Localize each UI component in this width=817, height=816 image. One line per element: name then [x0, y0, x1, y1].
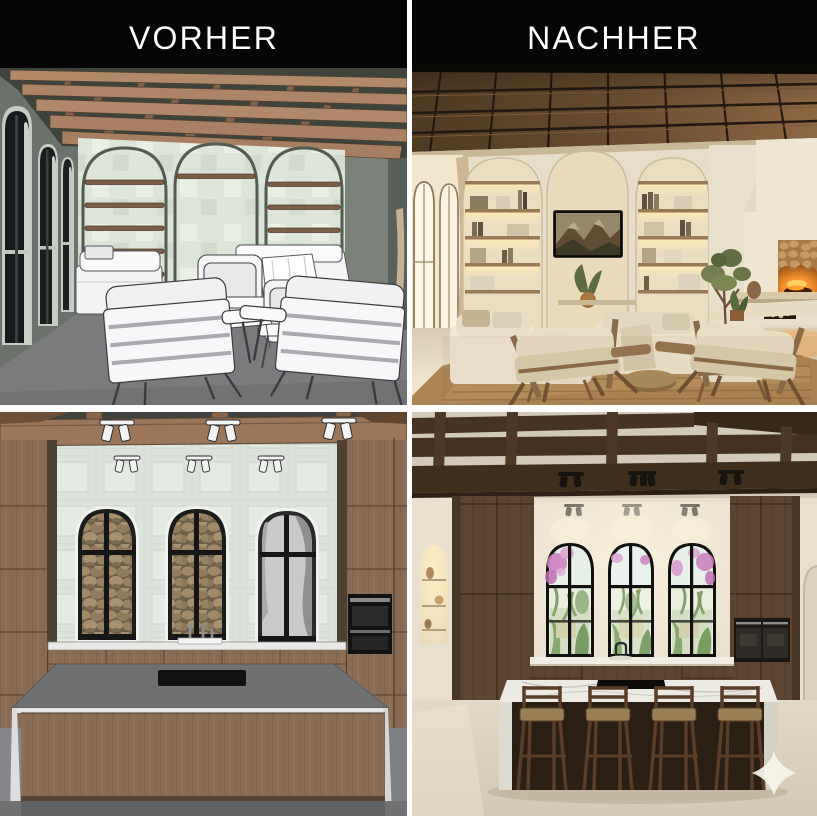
svg-text:NACHHER: NACHHER — [527, 20, 701, 56]
svg-text:VORHER: VORHER — [129, 20, 279, 56]
